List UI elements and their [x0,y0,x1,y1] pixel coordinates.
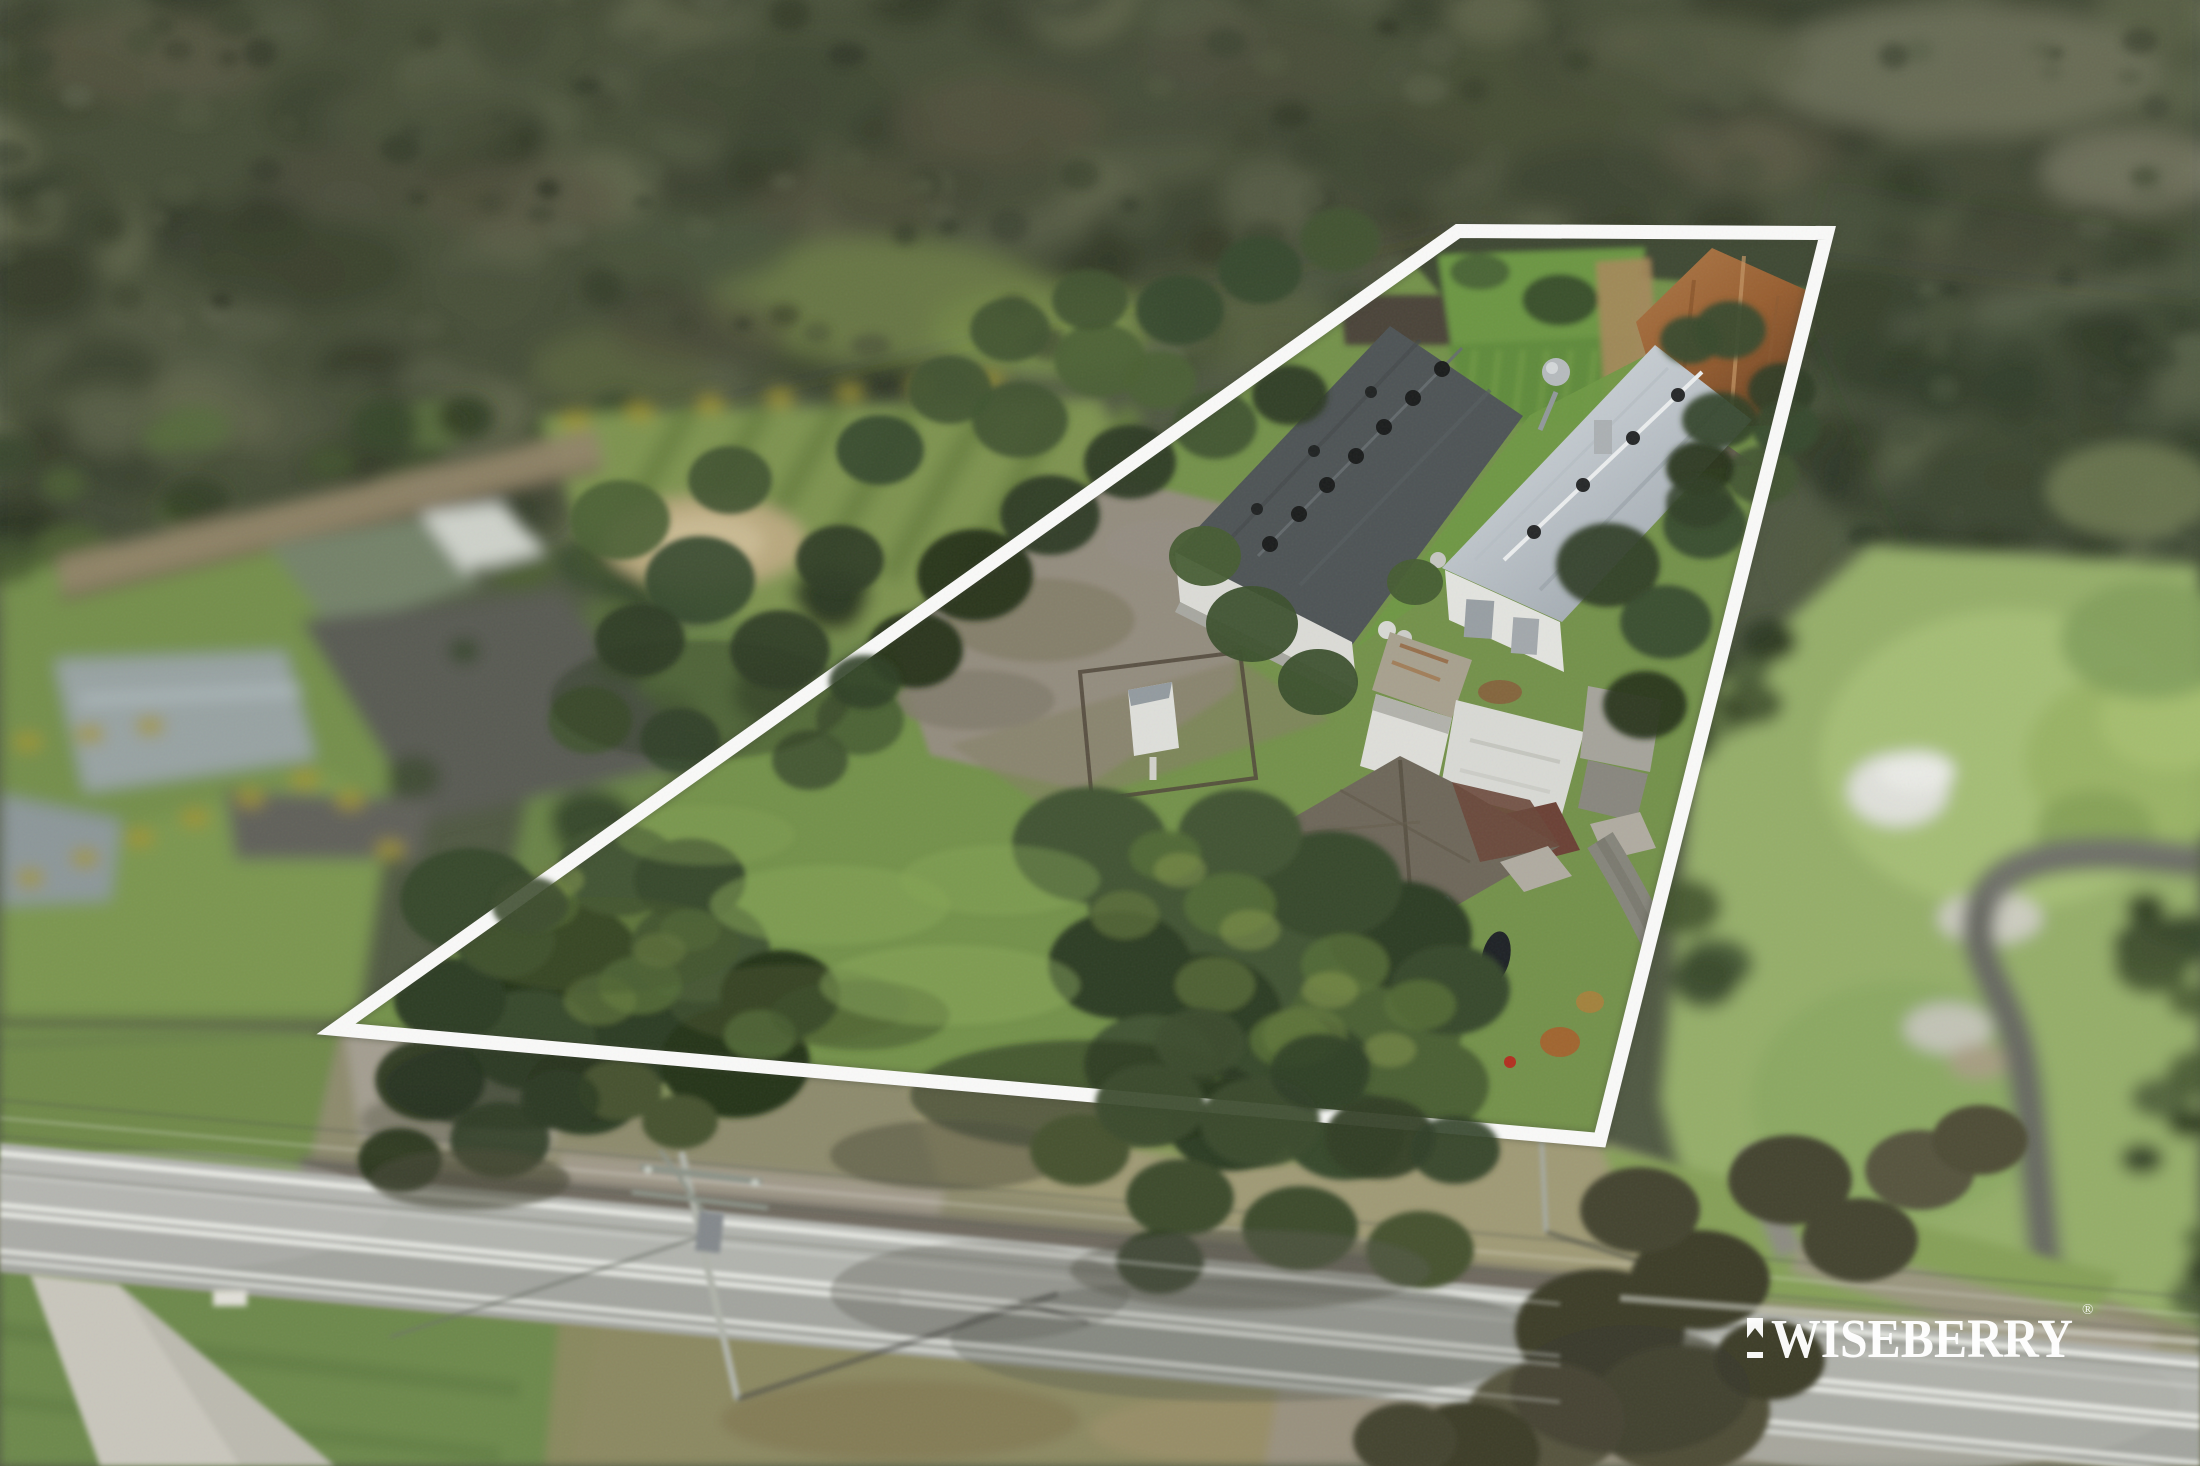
svg-text:WISEBERRY: WISEBERRY [1771,1308,2073,1369]
svg-text:®: ® [2082,1302,2093,1318]
